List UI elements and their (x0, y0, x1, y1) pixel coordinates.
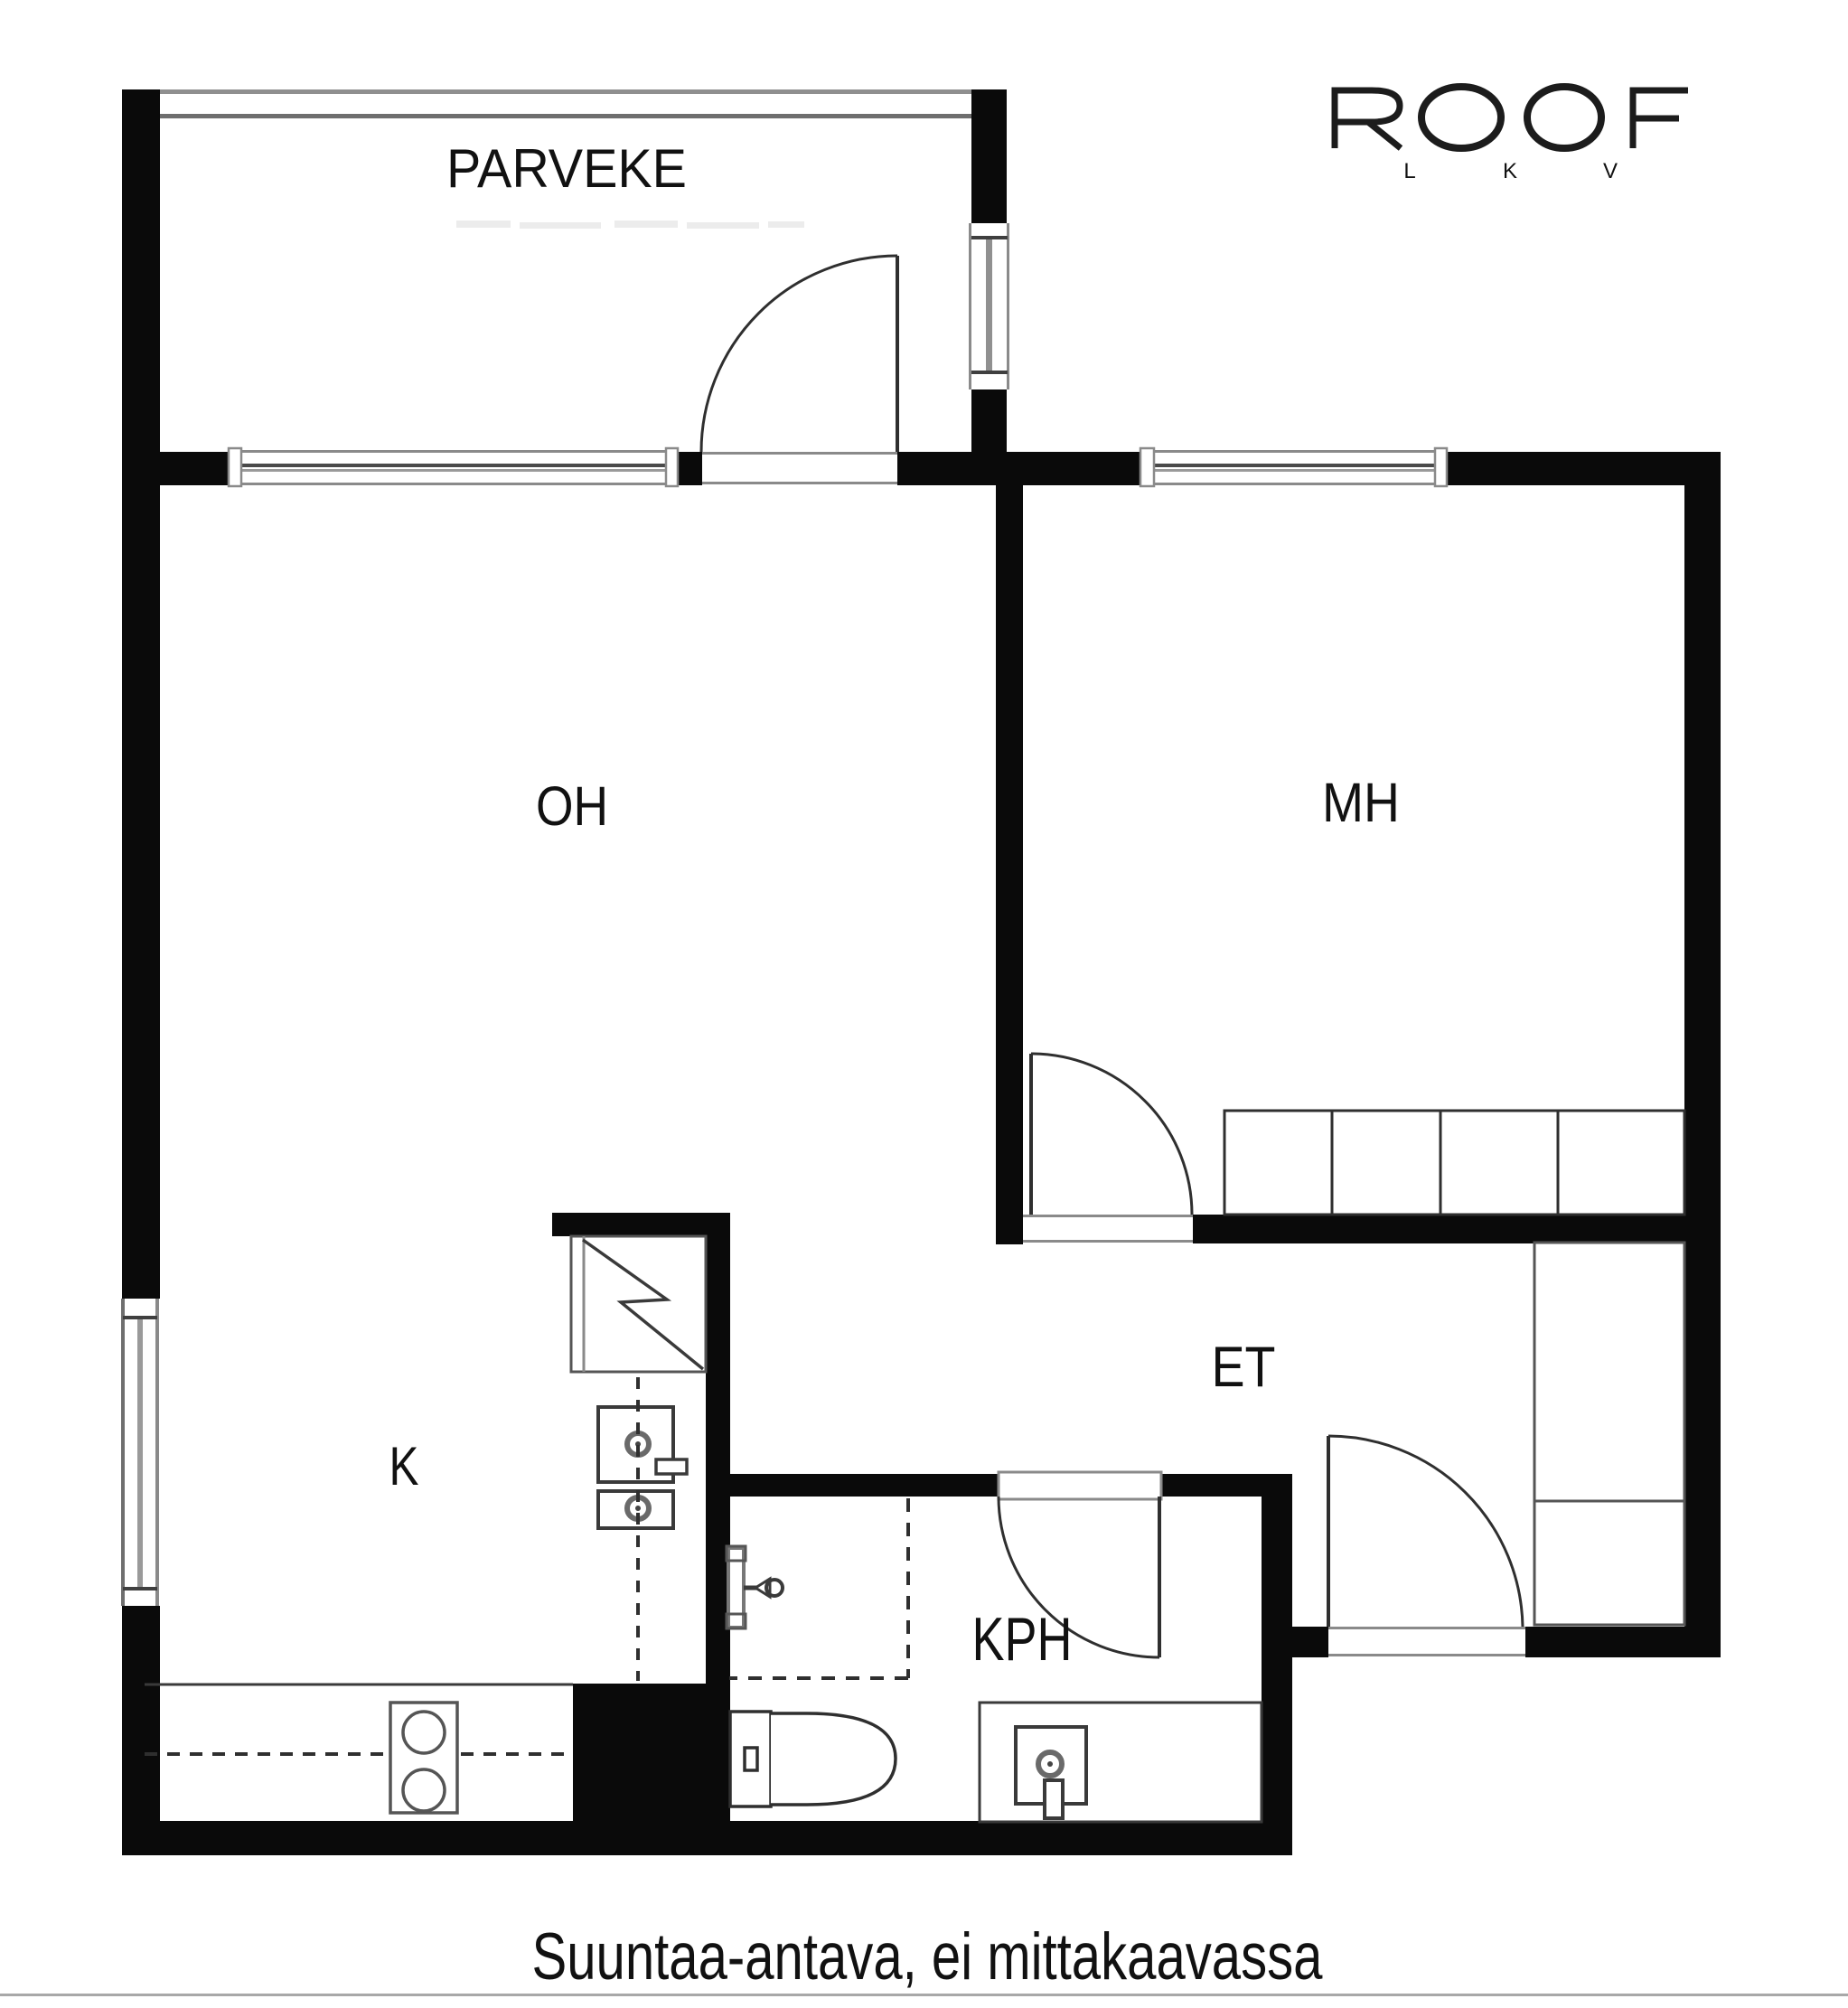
svg-text:OH: OH (536, 775, 608, 837)
svg-text:ET: ET (1212, 1336, 1276, 1399)
svg-text:MH: MH (1322, 772, 1400, 833)
svg-text:KPH: KPH (972, 1605, 1073, 1674)
svg-text:Suuntaa-antava, ei mittakaavas: Suuntaa-antava, ei mittakaavassa (532, 1920, 1323, 1994)
svg-text:K: K (1503, 159, 1517, 183)
svg-text:PARVEKE: PARVEKE (446, 138, 687, 199)
svg-text:K: K (389, 1436, 419, 1497)
svg-text:L: L (1403, 159, 1415, 183)
svg-text:V: V (1603, 159, 1618, 183)
